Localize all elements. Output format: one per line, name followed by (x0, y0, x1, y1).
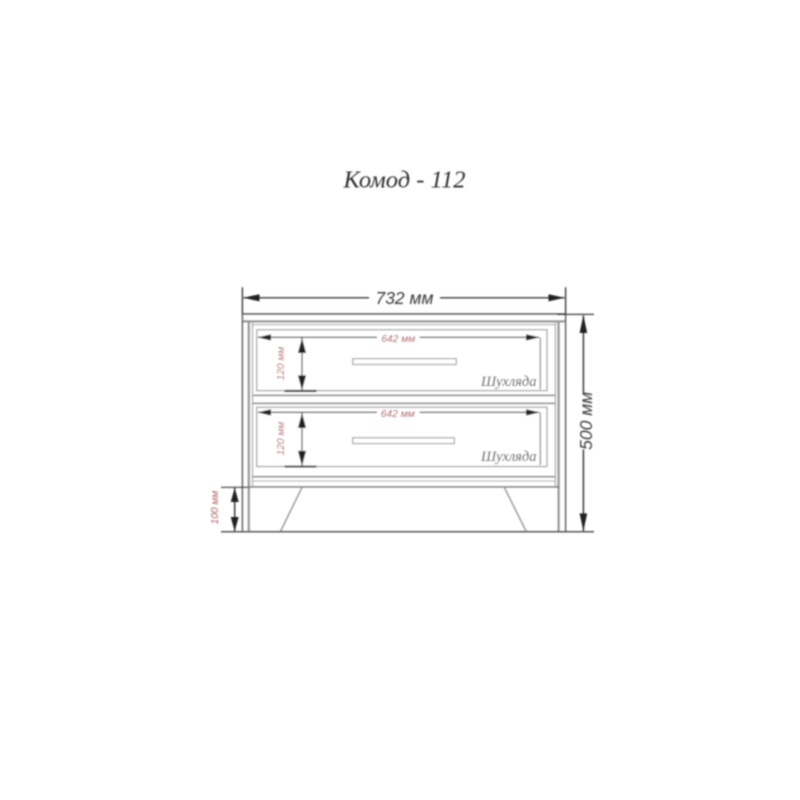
svg-text:100 мм: 100 мм (210, 491, 221, 525)
svg-text:Комод - 112: Комод - 112 (343, 167, 466, 194)
svg-text:120 мм: 120 мм (276, 422, 287, 456)
svg-text:642 мм: 642 мм (381, 409, 415, 420)
svg-text:Шухляда: Шухляда (480, 374, 536, 390)
svg-text:120 мм: 120 мм (276, 347, 287, 381)
svg-text:732 мм: 732 мм (375, 288, 433, 308)
svg-text:Шухляда: Шухляда (480, 449, 536, 465)
svg-text:642 мм: 642 мм (381, 334, 415, 345)
svg-text:500 мм: 500 мм (576, 392, 596, 450)
